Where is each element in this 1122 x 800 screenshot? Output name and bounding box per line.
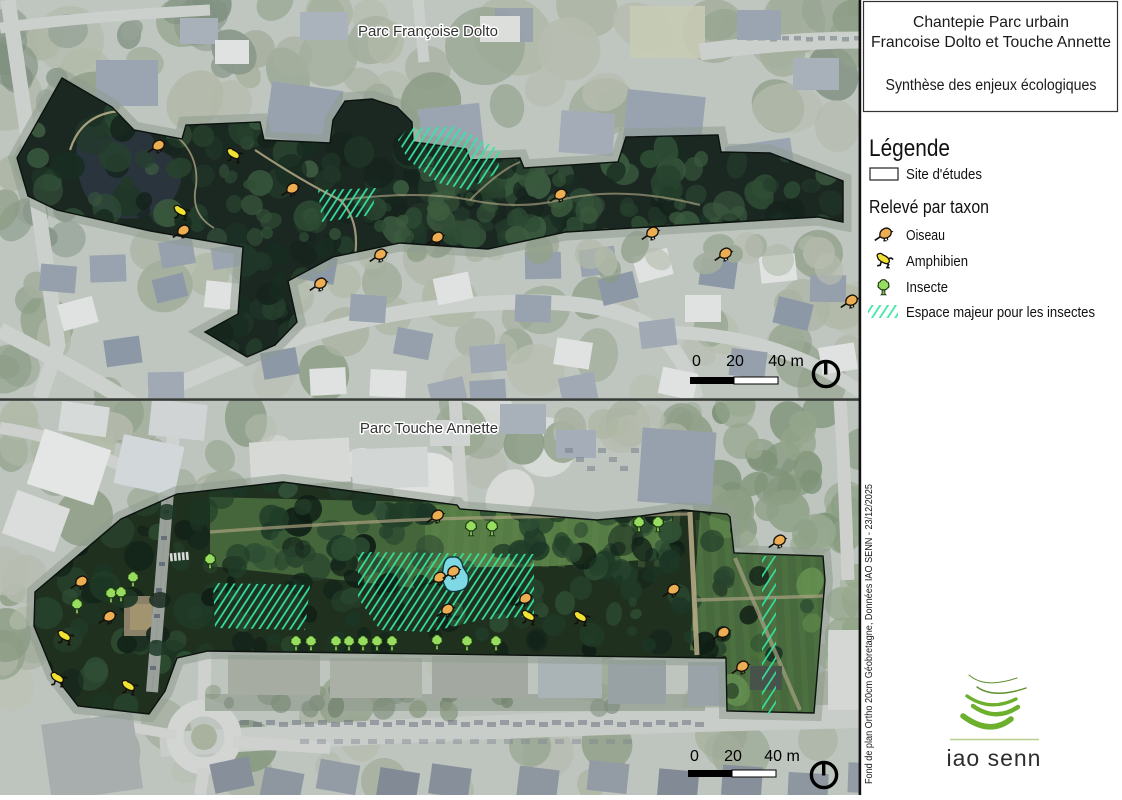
svg-text:Fond de plan Ortho 20cm Géobre: Fond de plan Ortho 20cm Géobretagne, Don…: [864, 484, 875, 784]
svg-text:Site d'études: Site d'études: [906, 166, 982, 183]
svg-text:Synthèse des enjeux écologique: Synthèse des enjeux écologiques: [886, 77, 1097, 94]
svg-text:40 m: 40 m: [768, 353, 804, 370]
svg-text:Légende: Légende: [869, 135, 950, 162]
svg-text:Oiseau: Oiseau: [906, 227, 945, 244]
svg-text:Francoise Dolto et Touche Anne: Francoise Dolto et Touche Annette: [871, 34, 1111, 51]
svg-text:Parc Touche Annette: Parc Touche Annette: [360, 420, 498, 437]
svg-text:20: 20: [724, 748, 742, 765]
svg-text:Chantepie Parc urbain: Chantepie Parc urbain: [913, 14, 1069, 31]
svg-text:Parc Françoise Dolto: Parc Françoise Dolto: [358, 23, 498, 40]
svg-text:Espace majeur pour les insecte: Espace majeur pour les insectes: [906, 304, 1095, 321]
svg-text:Insecte: Insecte: [906, 279, 948, 296]
svg-text:Relevé par taxon: Relevé par taxon: [869, 197, 989, 217]
svg-text:iao senn: iao senn: [947, 745, 1042, 771]
svg-text:Amphibien: Amphibien: [906, 253, 968, 270]
svg-text:20: 20: [726, 353, 744, 370]
svg-text:0: 0: [690, 748, 699, 765]
svg-text:0: 0: [692, 353, 701, 370]
svg-text:40 m: 40 m: [764, 748, 800, 765]
